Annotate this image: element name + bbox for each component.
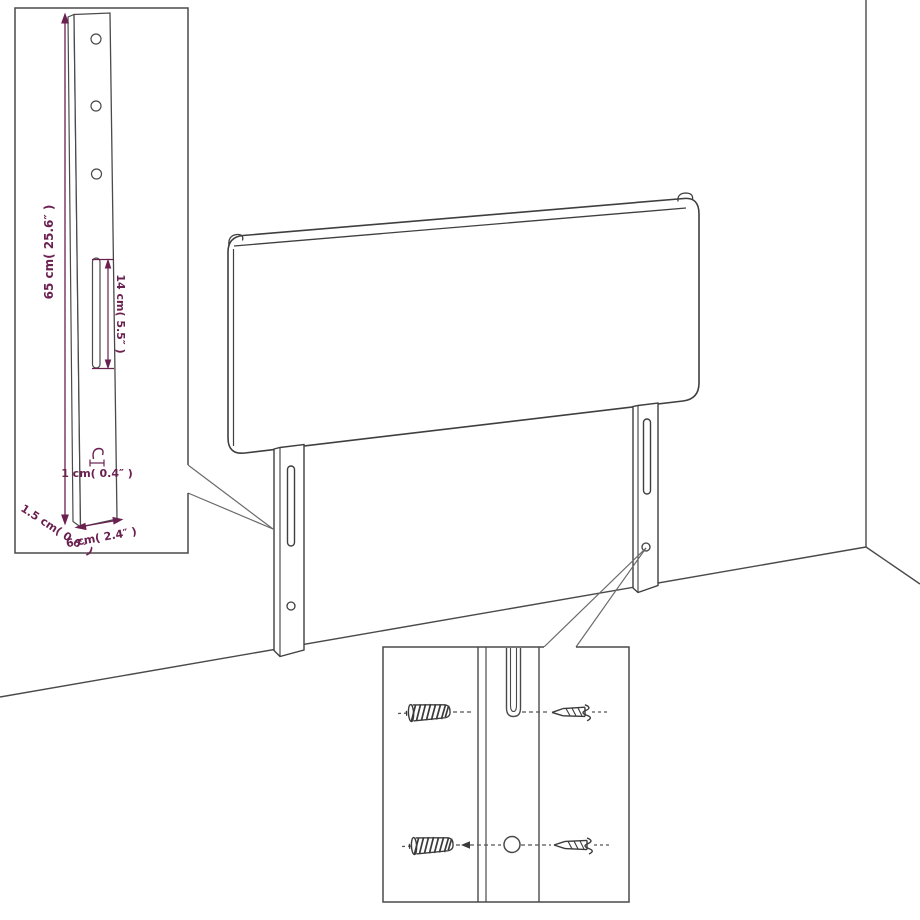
- callout-lines: [188, 465, 646, 647]
- fastener-detail-inset: [383, 647, 629, 902]
- headboard-diagram-svg: 65 cm( 25.6″ ) 14 cm( 5.5″ ) 1 cm( 0.4″ …: [0, 0, 920, 920]
- bracket-callout-line-upper: [188, 465, 273, 529]
- dim-14cm-label: 14 cm( 5.5″ ): [114, 274, 127, 353]
- fastener-callout-line-left: [544, 548, 646, 647]
- bracket-hole-3: [92, 169, 102, 179]
- right-leg-slot: [644, 419, 651, 494]
- left-leg-slot: [288, 466, 295, 546]
- headboard-front-face: [228, 198, 699, 453]
- diagram-canvas: 65 cm( 25.6″ ) 14 cm( 5.5″ ) 1 cm( 0.4″ …: [0, 0, 920, 920]
- headboard-left-leg: [274, 445, 304, 657]
- bracket-hole-2: [91, 101, 101, 111]
- floor-line-right: [866, 547, 920, 584]
- bracket-callout-line-lower: [188, 493, 273, 529]
- right-leg-hole: [642, 543, 650, 551]
- bracket-hole-1: [91, 34, 101, 44]
- headboard-right-leg: [633, 403, 658, 593]
- mounting-bracket: [68, 13, 117, 527]
- left-leg-hole: [287, 602, 295, 610]
- dim-1cm-label: 1 cm( 0.4″ ): [61, 467, 133, 480]
- headboard-panel: [228, 193, 699, 453]
- dim-65cm-label: 65 cm( 25.6″ ): [42, 205, 56, 300]
- bracket-slot: [93, 258, 101, 368]
- bracket-detail-inset: 65 cm( 25.6″ ) 14 cm( 5.5″ ) 1 cm( 0.4″ …: [15, 8, 188, 558]
- fastener-callout-line-right: [576, 548, 646, 647]
